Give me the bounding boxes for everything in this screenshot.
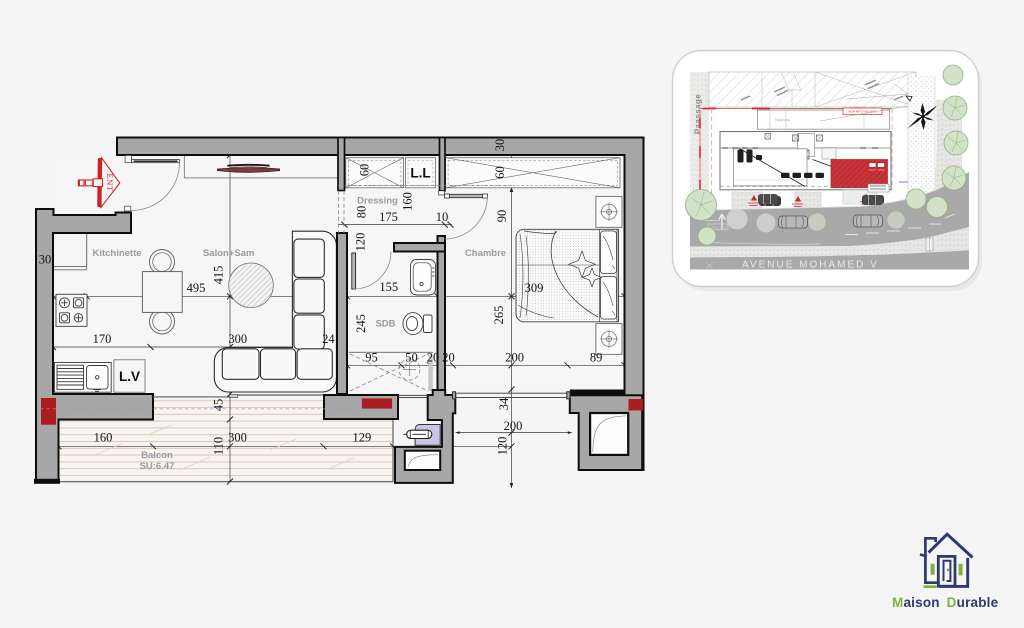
svg-text:495: 495 [187, 281, 206, 295]
svg-text:110: 110 [212, 437, 226, 455]
svg-text:Chambre: Chambre [465, 248, 506, 259]
svg-text:265: 265 [492, 306, 506, 325]
svg-text:155: 155 [379, 280, 398, 294]
svg-text:60: 60 [493, 166, 507, 179]
svg-text:30: 30 [39, 253, 52, 267]
svg-text:10: 10 [436, 210, 449, 224]
svg-text:160: 160 [94, 431, 113, 445]
svg-text:24: 24 [322, 332, 335, 346]
svg-text:245: 245 [354, 314, 368, 333]
svg-text:Salon+Sam: Salon+Sam [203, 248, 254, 259]
svg-text:175: 175 [379, 210, 398, 224]
svg-text:309: 309 [525, 281, 544, 295]
svg-text:Kitchinette: Kitchinette [92, 248, 141, 259]
svg-text:80: 80 [355, 206, 369, 219]
svg-text:95: 95 [365, 351, 378, 365]
svg-text:200: 200 [505, 351, 524, 365]
svg-text:120: 120 [496, 437, 510, 456]
svg-text:20: 20 [427, 351, 440, 365]
svg-text:89: 89 [590, 351, 603, 365]
svg-text:60: 60 [358, 164, 372, 177]
svg-text:45: 45 [212, 399, 226, 412]
svg-text:Dressing: Dressing [357, 196, 398, 207]
svg-text:120: 120 [354, 233, 368, 252]
svg-text:50: 50 [405, 351, 418, 365]
svg-text:90: 90 [495, 210, 509, 223]
svg-text:L.L: L.L [410, 166, 430, 181]
svg-text:MUR MITOYEN RDC: MUR MITOYEN RDC [848, 110, 877, 114]
svg-text:SDB: SDB [375, 319, 395, 330]
svg-text:30: 30 [493, 139, 507, 152]
svg-text:34: 34 [497, 397, 511, 410]
svg-text:L.V: L.V [119, 369, 140, 384]
svg-text:160: 160 [401, 192, 415, 211]
svg-text:129: 129 [353, 431, 372, 445]
svg-text:170: 170 [93, 332, 112, 346]
svg-text:20: 20 [442, 351, 455, 365]
svg-text:415: 415 [212, 266, 226, 285]
svg-text:300: 300 [228, 332, 247, 346]
svg-text:ENT: ENT [105, 173, 115, 191]
svg-text:TERRASSE: TERRASSE [775, 118, 790, 122]
svg-text:Balcon: Balcon [141, 450, 173, 461]
svg-text:200: 200 [504, 419, 523, 433]
svg-text:SU:6.47: SU:6.47 [140, 461, 175, 472]
svg-text:Paassage: Paassage [694, 94, 703, 134]
svg-text:300: 300 [228, 431, 247, 445]
svg-text:AVENUE MOHAMED V: AVENUE MOHAMED V [742, 260, 879, 271]
